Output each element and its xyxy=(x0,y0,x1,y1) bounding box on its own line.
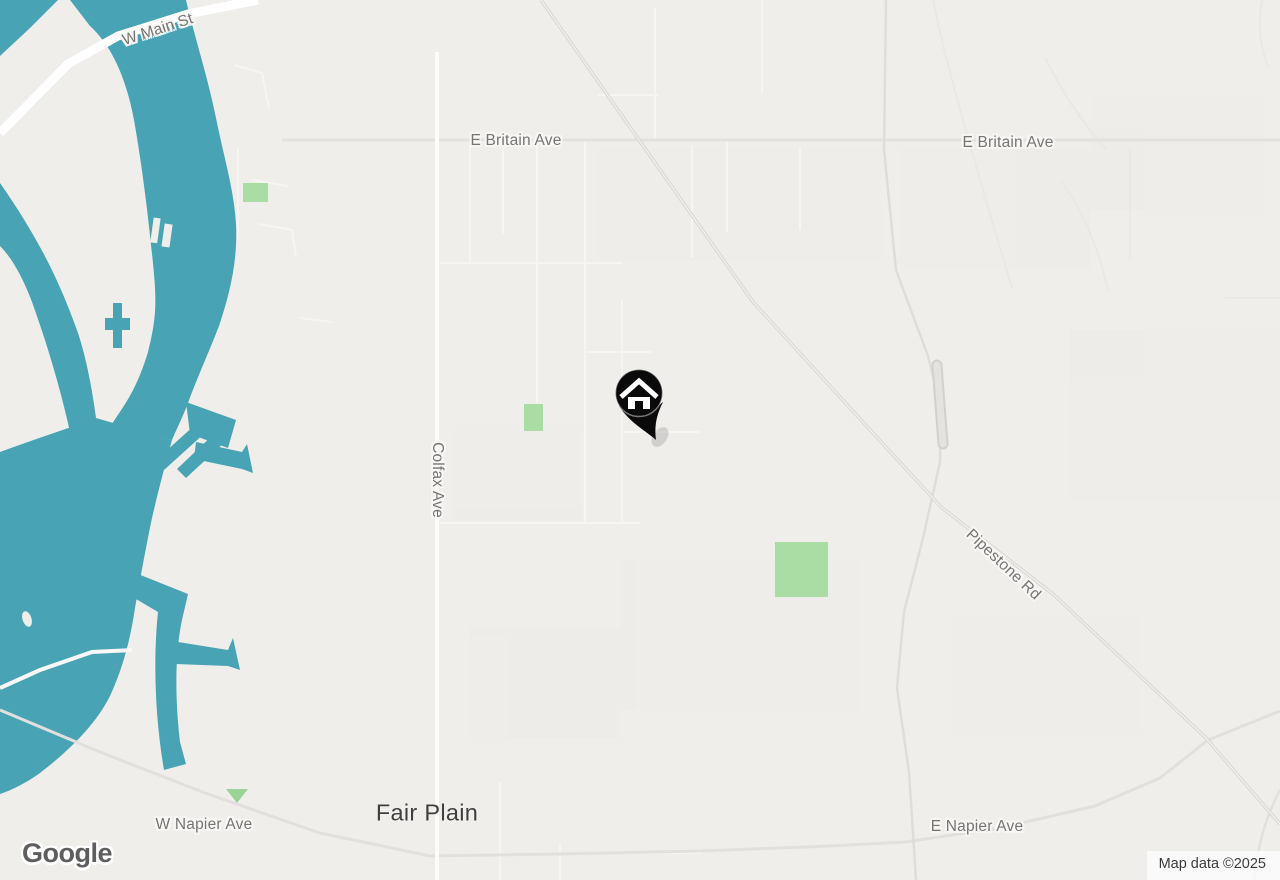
map-canvas[interactable]: W Main St E Britain Ave E Britain Ave Co… xyxy=(0,0,1280,880)
street-label-e-britain-ave-west: E Britain Ave xyxy=(470,132,561,150)
street-label-e-napier-ave: E Napier Ave xyxy=(931,818,1024,836)
place-label-fair-plain: Fair Plain xyxy=(376,800,478,827)
map-graphics xyxy=(0,0,1280,880)
park-square-small-2 xyxy=(524,404,543,431)
street-label-e-britain-ave-east: E Britain Ave xyxy=(962,134,1053,152)
street-label-colfax-ave: Colfax Ave xyxy=(428,442,446,518)
street-label-w-napier-ave: W Napier Ave xyxy=(156,816,253,834)
park-square-large xyxy=(775,542,828,597)
park-square-small-1 xyxy=(243,183,268,202)
google-logo[interactable]: Google xyxy=(22,838,112,869)
map-data-attribution: Map data ©2025 xyxy=(1147,851,1280,880)
